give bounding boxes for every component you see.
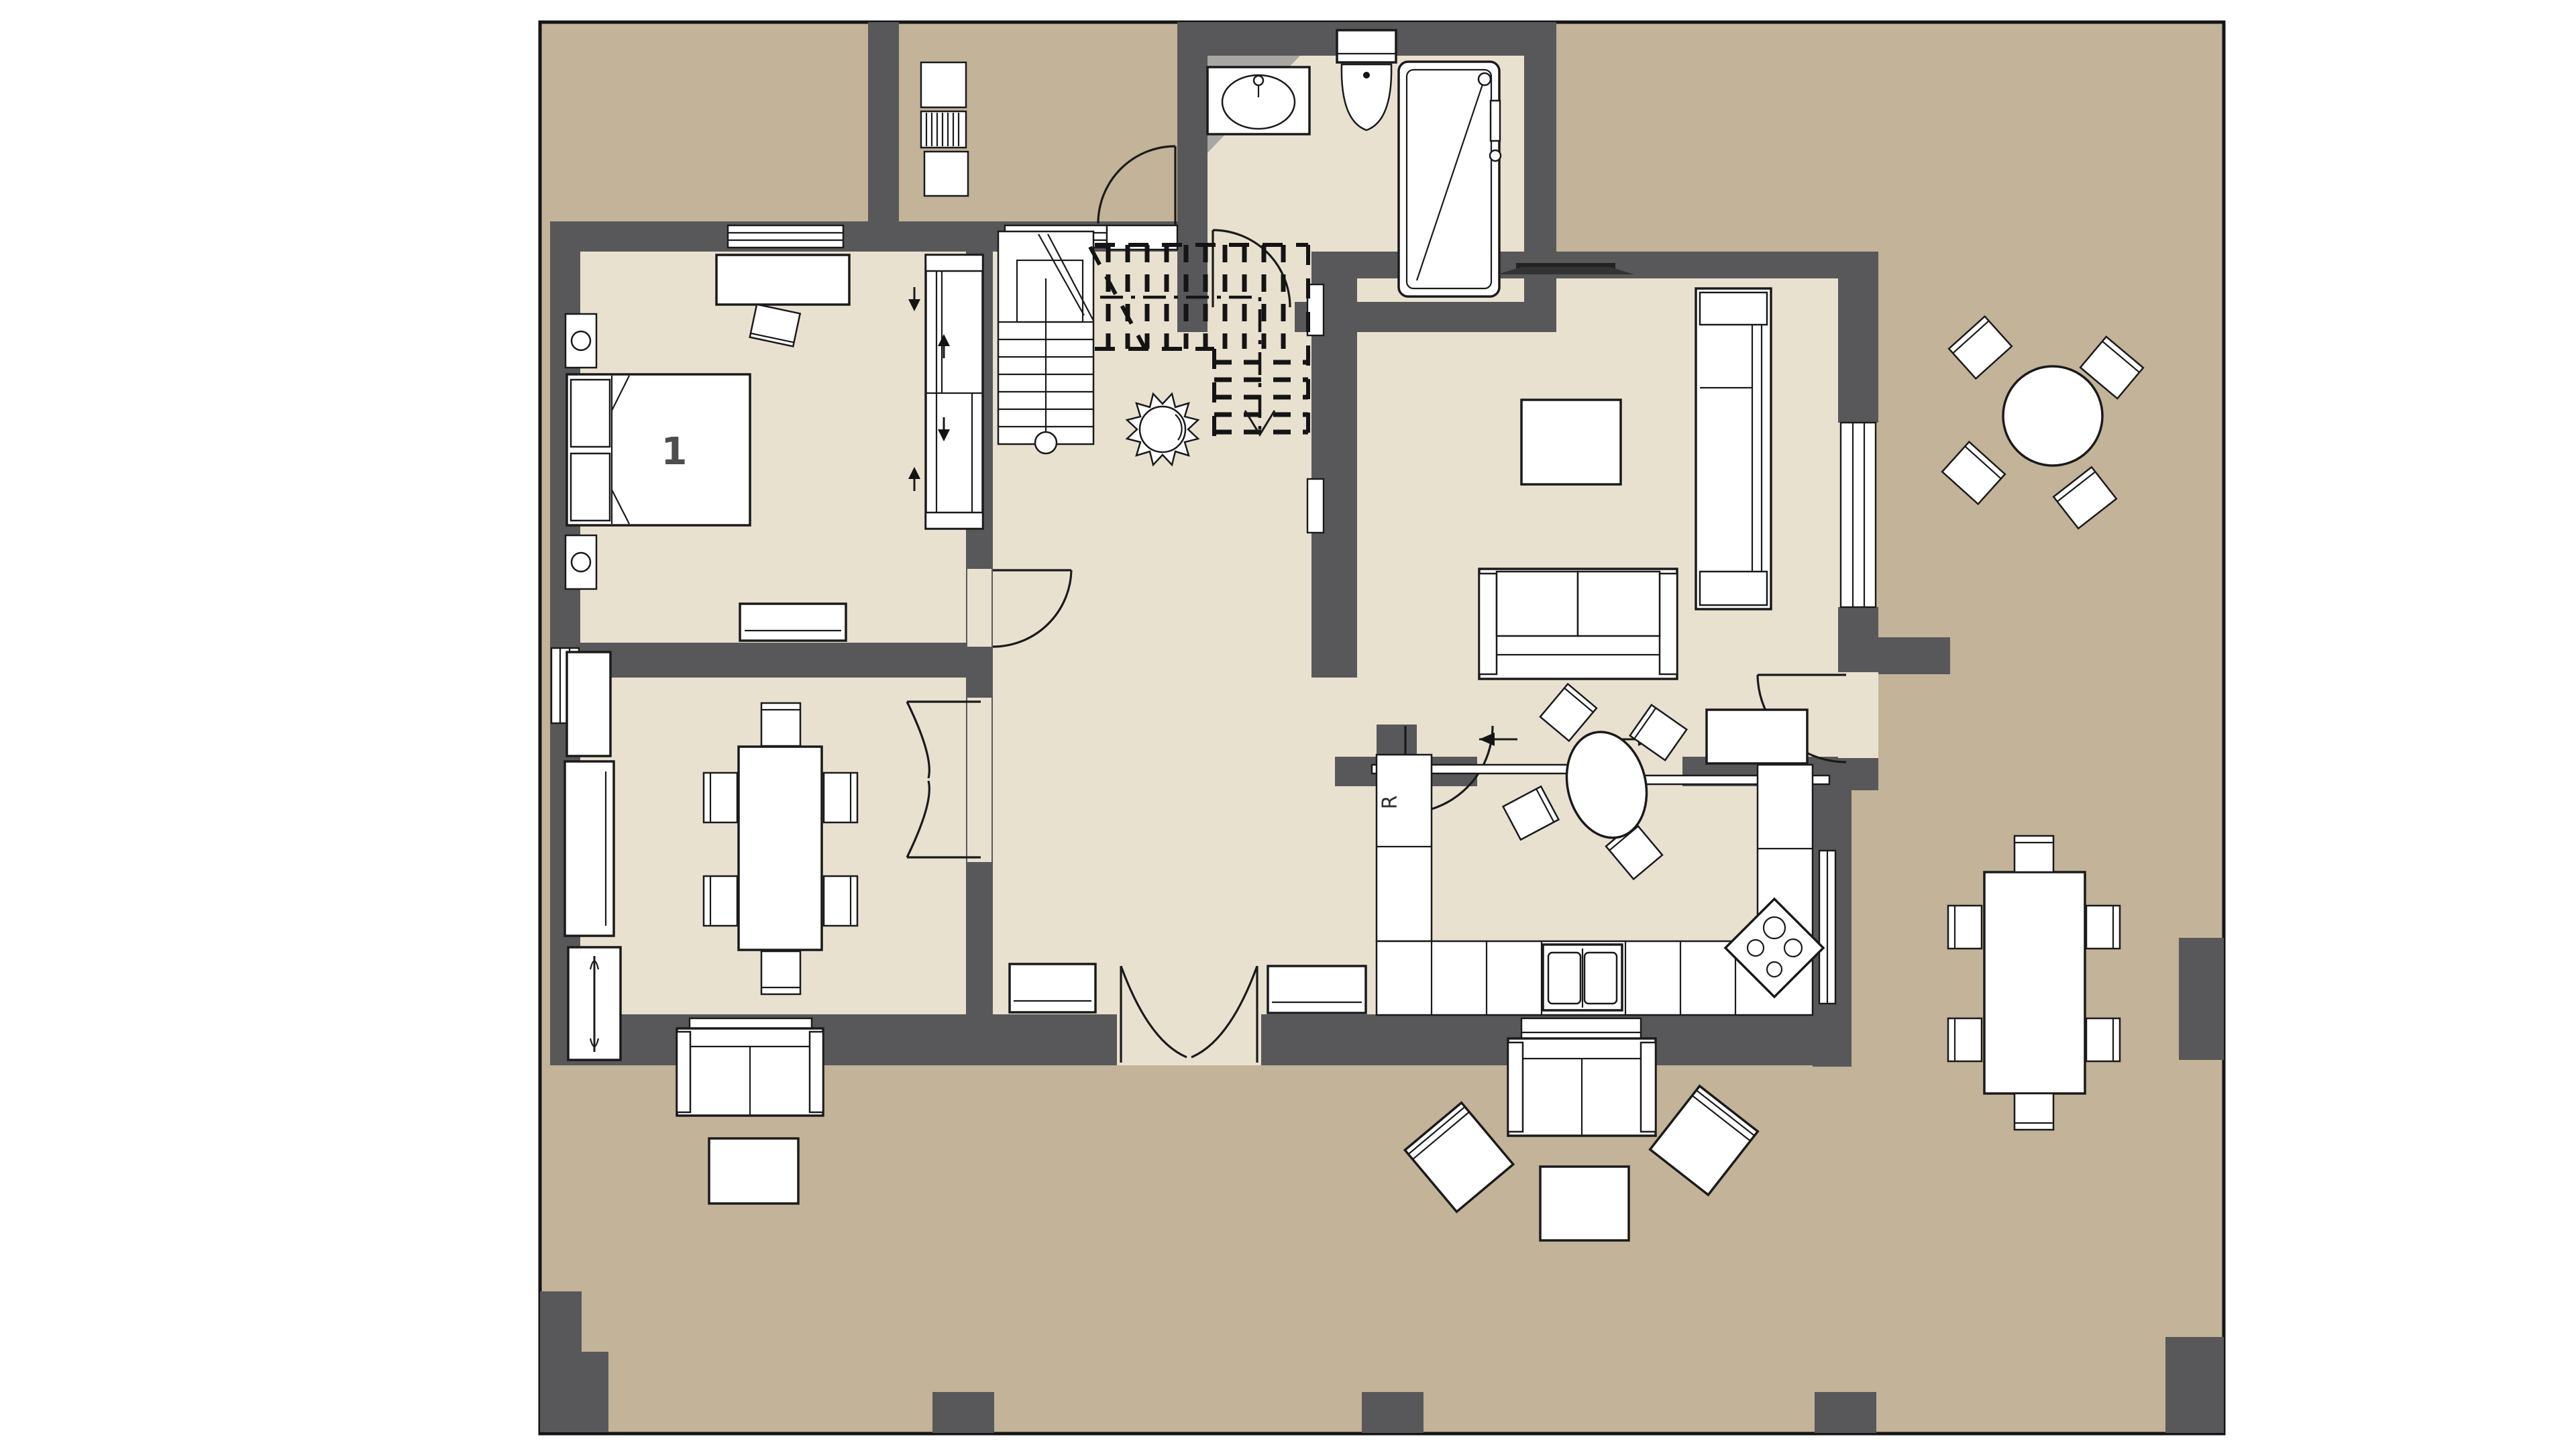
coffee-table: [1521, 400, 1621, 484]
refrigerator-label: R: [1379, 796, 1402, 810]
kitchen-counter-left: R: [1377, 755, 1432, 941]
hall-niche-radiator-2: [1307, 479, 1324, 533]
lamp-icon: [572, 553, 590, 572]
floor-plan-svg: 1: [0, 0, 2576, 1445]
shower: [1399, 62, 1501, 297]
hall-living-wall: [1311, 277, 1357, 678]
chaise-sofa: [1696, 288, 1771, 609]
bedroom-dining-wall: [550, 643, 993, 678]
bed-pillow-2: [571, 453, 610, 521]
plant-icon: [1127, 394, 1198, 465]
bathroom-east-wall: [1524, 54, 1556, 332]
side-table: [1707, 710, 1807, 763]
bedroom-north-window: [728, 225, 843, 248]
utility-box: [924, 152, 968, 196]
shower-head-icon: [1479, 73, 1491, 85]
outdoor-sofa-center: [1508, 1038, 1656, 1136]
living-east-wall-b: [1838, 607, 1878, 674]
bed-pillow-1: [571, 380, 610, 447]
terrace-east-pillar: [2179, 938, 2224, 1060]
patio-round-table: [2003, 366, 2102, 466]
porch-utilities: [921, 62, 968, 196]
terrace-wall-step-lower: [540, 1352, 608, 1432]
pergola-pillar-1: [932, 1392, 994, 1433]
outdoor-dining-table: [1984, 872, 2085, 1093]
terrace-corner-pillar: [2165, 1337, 2224, 1433]
kitchen-east-window: [1819, 851, 1835, 1004]
vanity-sink: [1207, 67, 1309, 134]
vent-grille-icon: [921, 111, 966, 148]
nightstand-2: [566, 535, 596, 589]
outdoor-sofa-west: [677, 1028, 823, 1116]
living-east-window: [1841, 423, 1876, 607]
hall-bench-east: [1268, 966, 1366, 1013]
cabinet: [567, 652, 610, 756]
sliding-wardrobe: [926, 255, 983, 529]
dresser: [740, 604, 846, 641]
hall-bench-west: [1010, 964, 1095, 1012]
floor-plan-page: 1: [0, 0, 2576, 1445]
lamp-icon: [572, 331, 590, 350]
kitchen-sink: [1543, 945, 1622, 1010]
living-east-wall-a: [1838, 252, 1878, 423]
bathroom-west-wall: [1177, 54, 1207, 332]
porch-west-wall: [868, 22, 899, 250]
outdoor-coffee-table-west: [709, 1138, 798, 1203]
east-terrace-wall-stub: [1875, 637, 1950, 674]
terrace-wall-step-upper: [540, 1291, 582, 1355]
desk: [716, 255, 849, 305]
kitchen-wall-stub: [1377, 725, 1417, 758]
outdoor-coffee-table: [1540, 1167, 1629, 1240]
utility-cabinet: [921, 62, 966, 107]
radiator-cabinet: [568, 947, 621, 1060]
tv: [1497, 263, 1634, 274]
nightstand-1: [566, 314, 596, 368]
dining-table: [739, 747, 822, 950]
pergola-pillar-3: [1815, 1392, 1876, 1433]
pergola-pillar-2: [1362, 1392, 1424, 1433]
stair-newel-post: [1035, 432, 1057, 453]
bedroom-number-label: 1: [661, 430, 688, 474]
sofa: [1479, 569, 1677, 679]
